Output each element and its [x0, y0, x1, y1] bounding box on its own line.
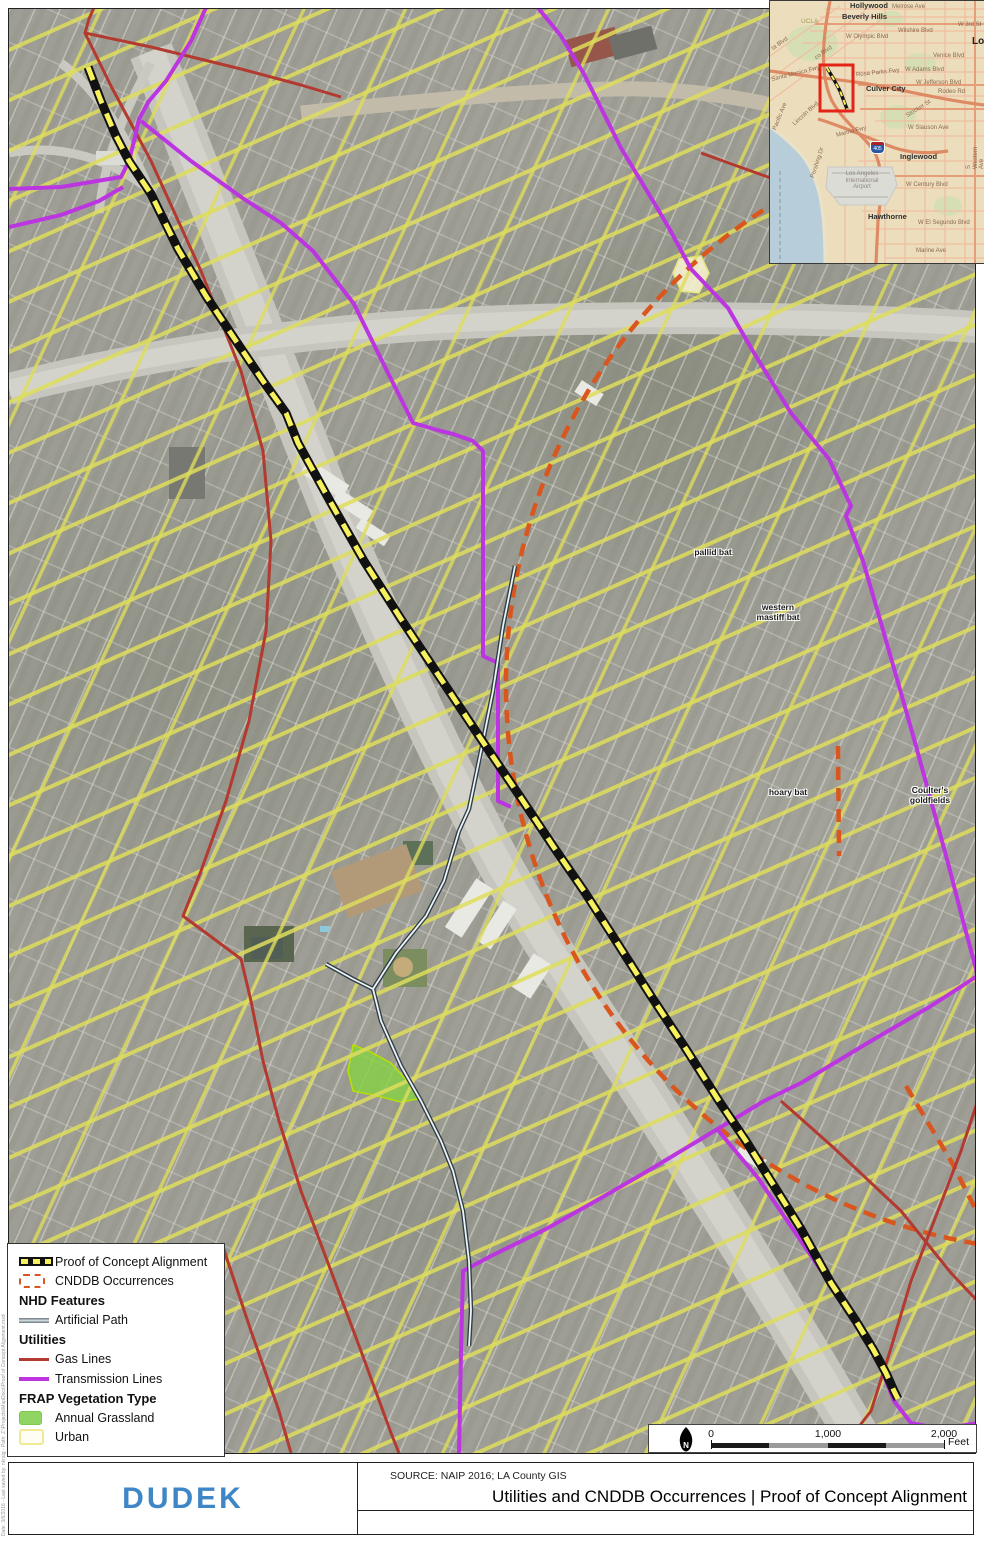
- gas-line-swatch: [19, 1358, 55, 1361]
- legend-item-annual-grassland: Annual Grassland: [19, 1408, 224, 1428]
- map-title: Utilities and CNDDB Occurrences | Proof …: [492, 1487, 967, 1507]
- inset-label-melrose-ave: Melrose Ave: [892, 4, 925, 11]
- inset-label-rodeo-rd: Rodeo Rd: [938, 89, 965, 96]
- inset-label-w-century-blvd: W Century Blvd: [906, 182, 948, 189]
- ocean: [770, 127, 825, 263]
- logo-cell: DUDEK: [9, 1463, 358, 1534]
- legend-item-transmission-lines: Transmission Lines: [19, 1369, 224, 1389]
- inset-label-beverly-hills: Beverly Hills: [842, 13, 887, 21]
- inset-label-hollywood: Hollywood: [850, 2, 888, 10]
- svg-text:N: N: [683, 1441, 689, 1450]
- inset-label-culver-city: Culver City: [866, 85, 906, 93]
- scale-unit: Feet: [948, 1436, 969, 1448]
- species-label-pallid-bat: pallid bat: [694, 547, 731, 557]
- species-label-western-mastiff-bat: western mastiff bat: [757, 602, 800, 622]
- artificial-path-swatch: [19, 1318, 55, 1323]
- inset-label-w-adams-blvd: W Adams Blvd: [905, 67, 944, 74]
- dudek-logo: DUDEK: [122, 1482, 244, 1516]
- inset-label-w-slauson-ave: W Slauson Ave: [908, 125, 949, 132]
- urban-swatch: [19, 1429, 55, 1445]
- inset-label-w-jefferson-blvd: W Jefferson Blvd: [916, 80, 961, 87]
- scale-bar-box: N 0 1,000 2,000 Feet: [648, 1424, 977, 1453]
- inset-overview-map: Hollywood Melrose Ave Beverly Hills W 3r…: [769, 0, 984, 264]
- title-row: SOURCE: NAIP 2016; LA County GIS Utiliti…: [358, 1463, 973, 1511]
- interstate-405-shield: 405: [870, 141, 885, 154]
- transmission-line-swatch: [19, 1377, 55, 1381]
- legend-item-cnddb: CNDDB Occurrences: [19, 1272, 224, 1292]
- inset-label-wilshire-blvd: Wilshire Blvd: [898, 28, 933, 35]
- title-cell: SOURCE: NAIP 2016; LA County GIS Utiliti…: [358, 1463, 973, 1534]
- inset-label-w-el-segundo-blvd: W El Segundo Blvd: [918, 220, 970, 227]
- title-block: DUDEK SOURCE: NAIP 2016; LA County GIS U…: [8, 1462, 974, 1535]
- inset-label-lax: Los Angeles International Airport: [834, 171, 890, 191]
- legend-header-nhd: NHD Features: [19, 1291, 224, 1311]
- legend: Proof of Concept Alignment CNDDB Occurre…: [7, 1243, 225, 1457]
- inset-label-w-3rd-st: W 3rd St: [958, 22, 981, 29]
- alignment-swatch: [19, 1257, 55, 1266]
- scale-tick-0: 0: [708, 1428, 714, 1440]
- species-label-coulters-goldfields: Coulter's goldfields: [910, 785, 950, 805]
- document-path-note: Date: 3/6/2018 - Last saved by: nkraig -…: [1, 1315, 7, 1537]
- shield-number: 405: [871, 146, 884, 152]
- inset-label-s-western-ave: S Western Ave: [966, 147, 984, 169]
- source-note: SOURCE: NAIP 2016; LA County GIS: [390, 1470, 567, 1482]
- legend-header-frap: FRAP Vegetation Type: [19, 1389, 224, 1409]
- legend-item-artificial-path: Artificial Path: [19, 1311, 224, 1331]
- legend-item-urban: Urban: [19, 1428, 224, 1448]
- inset-label-venice-blvd: Venice Blvd: [933, 53, 964, 60]
- legend-item-gas-lines: Gas Lines: [19, 1350, 224, 1370]
- map-sheet: pallid bat western mastiff bat hoary bat…: [0, 0, 984, 1542]
- species-label-hoary-bat: hoary bat: [769, 787, 807, 797]
- inset-label-inglewood: Inglewood: [900, 153, 937, 161]
- inset-label-hawthorne: Hawthorne: [868, 213, 907, 221]
- inset-label-marine-ave: Marine Ave: [916, 248, 946, 255]
- legend-header-utilities: Utilities: [19, 1330, 224, 1350]
- inset-label-los-angeles: Lo: [972, 36, 984, 47]
- scale-tick-1000: 1,000: [815, 1428, 841, 1440]
- annual-grassland-swatch: [19, 1411, 55, 1425]
- inset-label-ucla: UCLA: [801, 18, 818, 25]
- north-arrow-icon: N: [675, 1426, 697, 1453]
- cnddb-swatch: [19, 1274, 55, 1288]
- inset-label-w-olympic-blvd: W Olympic Blvd: [846, 34, 888, 41]
- legend-item-alignment: Proof of Concept Alignment: [19, 1252, 224, 1272]
- scale-bar: [711, 1443, 944, 1448]
